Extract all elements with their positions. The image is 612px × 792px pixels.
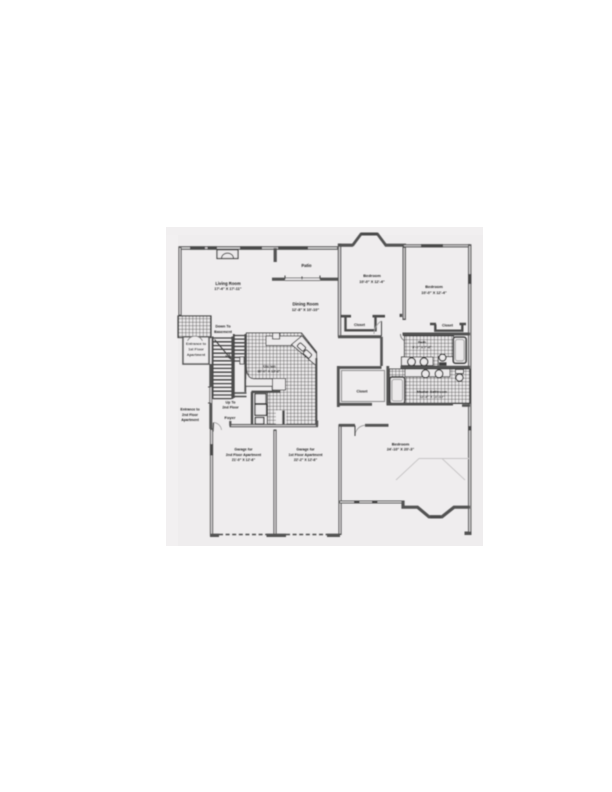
- svg-text:Up To: Up To: [226, 401, 237, 405]
- svg-text:Bedroom: Bedroom: [363, 273, 381, 278]
- svg-text:Kitchen: Kitchen: [262, 365, 276, 369]
- svg-text:Closet: Closet: [442, 324, 454, 328]
- svg-text:12'-2" X 11'-10": 12'-2" X 11'-10": [419, 395, 444, 399]
- svg-text:22'-2" X 12'-6": 22'-2" X 12'-6": [294, 458, 318, 462]
- svg-text:17'-4" X 17'-11": 17'-4" X 17'-11": [214, 287, 241, 291]
- svg-text:10'-0" X 12'-4": 10'-0" X 12'-4": [359, 280, 384, 284]
- svg-text:Bath: Bath: [418, 341, 427, 345]
- svg-text:Master Bathroom: Master Bathroom: [417, 390, 448, 394]
- svg-text:Garage for: Garage for: [234, 448, 253, 452]
- svg-text:Living Room: Living Room: [215, 281, 241, 286]
- svg-text:Closet: Closet: [357, 390, 369, 394]
- svg-text:Entrance to: Entrance to: [186, 342, 207, 346]
- svg-text:1st Floor Apartment: 1st Floor Apartment: [288, 453, 323, 457]
- svg-text:Bedroom: Bedroom: [425, 284, 443, 289]
- svg-text:2nd Floor Apartment: 2nd Floor Apartment: [226, 453, 262, 457]
- svg-text:Basement: Basement: [214, 330, 232, 334]
- svg-text:Foyer: Foyer: [225, 415, 236, 420]
- svg-text:Down To: Down To: [215, 325, 231, 329]
- svg-text:Dining Room: Dining Room: [292, 302, 318, 307]
- svg-text:10'-0" X 12'-4": 10'-0" X 12'-4": [421, 291, 446, 295]
- svg-text:Apartment: Apartment: [181, 418, 199, 422]
- svg-text:Entrance to: Entrance to: [180, 408, 199, 412]
- svg-text:Patio: Patio: [301, 263, 312, 268]
- svg-text:2nd Floor: 2nd Floor: [222, 406, 239, 410]
- svg-text:9'-0" X 7'-6": 9'-0" X 7'-6": [412, 346, 432, 350]
- svg-text:12'-8" X 10'-10": 12'-8" X 10'-10": [292, 308, 320, 312]
- svg-text:2nd Floor: 2nd Floor: [182, 413, 199, 417]
- svg-text:1st Floor: 1st Floor: [188, 348, 204, 352]
- svg-text:10'-0" X 13'-2": 10'-0" X 13'-2": [257, 370, 281, 374]
- svg-text:Apartment: Apartment: [187, 353, 206, 357]
- svg-text:Bedroom: Bedroom: [392, 442, 410, 447]
- svg-text:Garage for: Garage for: [296, 448, 315, 452]
- svg-text:21'-0" X 12'-6": 21'-0" X 12'-6": [232, 458, 256, 462]
- svg-text:Closet: Closet: [354, 323, 366, 327]
- svg-text:24'-10" X 20'-3": 24'-10" X 20'-3": [387, 448, 415, 452]
